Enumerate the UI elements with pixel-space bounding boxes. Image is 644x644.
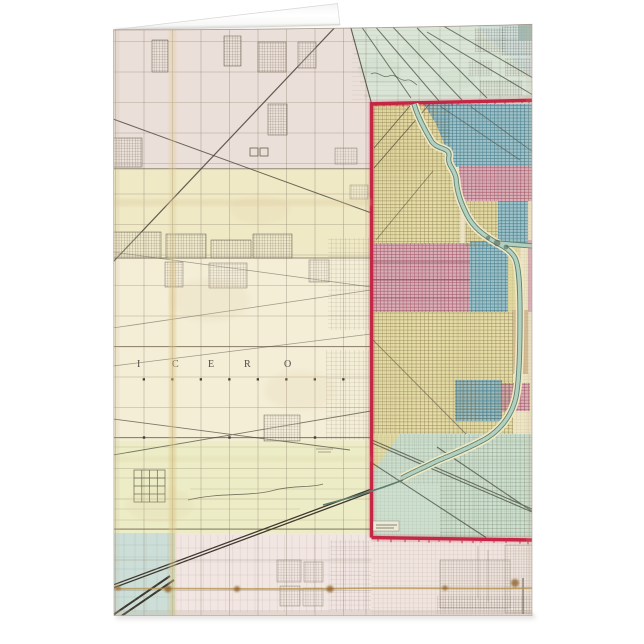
svg-text:I: I — [137, 359, 140, 370]
svg-text:O: O — [284, 359, 291, 370]
svg-text:E: E — [208, 359, 214, 370]
svg-text:R: R — [244, 359, 251, 370]
